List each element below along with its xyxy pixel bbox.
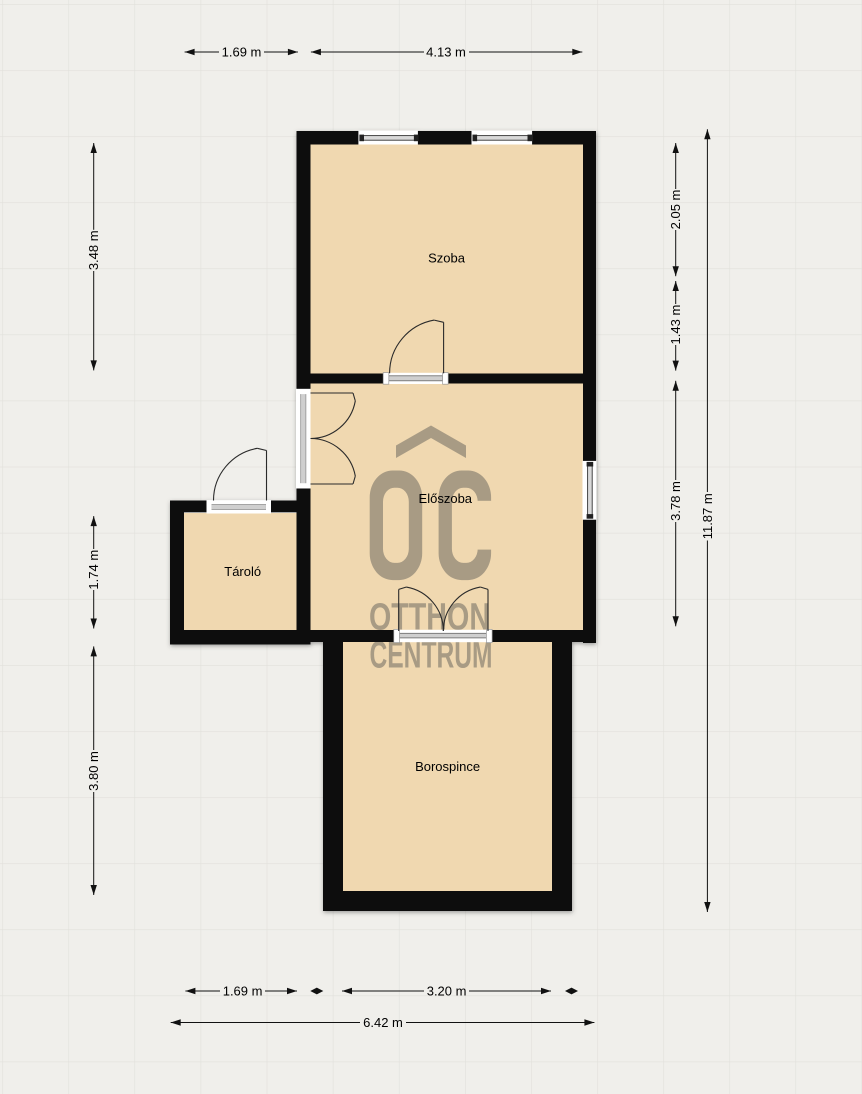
- svg-text:Szoba: Szoba: [428, 251, 466, 266]
- svg-text:1.74 m: 1.74 m: [86, 550, 101, 590]
- svg-text:1.69 m: 1.69 m: [223, 984, 263, 999]
- svg-text:3.20 m: 3.20 m: [427, 984, 467, 999]
- svg-text:3.78 m: 3.78 m: [668, 481, 683, 521]
- svg-text:4.13 m: 4.13 m: [426, 45, 466, 60]
- svg-text:3.80 m: 3.80 m: [86, 751, 101, 791]
- svg-text:11.87 m: 11.87 m: [700, 493, 715, 539]
- svg-text:1.43 m: 1.43 m: [668, 305, 683, 345]
- svg-text:3.48 m: 3.48 m: [86, 230, 101, 270]
- svg-text:Tároló: Tároló: [224, 564, 261, 579]
- svg-text:Borospince: Borospince: [415, 759, 480, 774]
- svg-text:6.42 m: 6.42 m: [363, 1015, 403, 1030]
- svg-text:2.05 m: 2.05 m: [668, 190, 683, 230]
- svg-text:1.69 m: 1.69 m: [222, 45, 262, 60]
- svg-text:Előszoba: Előszoba: [419, 491, 473, 506]
